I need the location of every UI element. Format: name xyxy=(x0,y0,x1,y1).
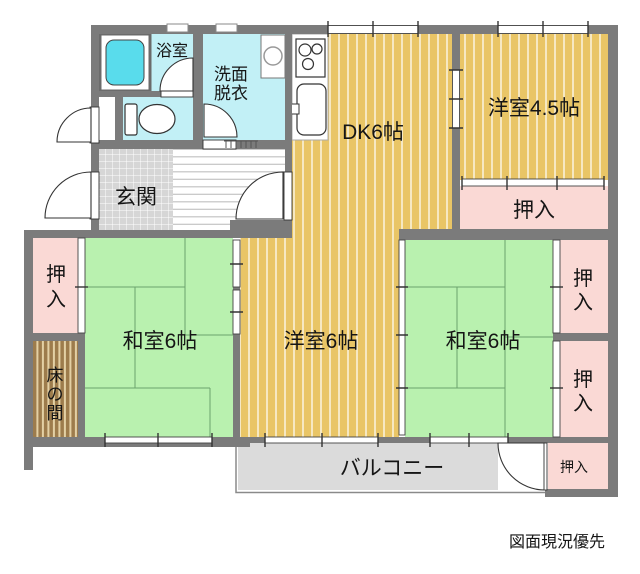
dk-opening-floor xyxy=(292,220,399,240)
kitchen-sink xyxy=(297,84,326,135)
front-door-arc xyxy=(45,172,91,218)
stove xyxy=(296,39,325,77)
label-tokonoma: 床の間 xyxy=(47,366,64,423)
label-closet-balcony-side: 押入 xyxy=(560,459,588,475)
toilet-entry-nook xyxy=(99,97,115,140)
drawing-note: 図面現況優先 xyxy=(509,533,605,551)
label-closet-upper-right: 押入 xyxy=(513,199,555,222)
label-genkan: 玄関 xyxy=(115,186,157,209)
balcony-closet-door-panel xyxy=(544,443,547,490)
toilet-door-arc xyxy=(57,108,91,142)
label-dk: DK6帖 xyxy=(342,121,404,144)
bathtub xyxy=(106,40,144,85)
floor-plan: 浴室 洗面 脱衣 玄関 DK6帖 洋室4.5帖 押入 和室6帖 洋室6帖 和室6… xyxy=(0,0,640,574)
label-japanese-right: 和室6帖 xyxy=(446,330,521,353)
wall-notch xyxy=(167,24,188,32)
label-washroom-line2: 脱衣 xyxy=(214,84,248,103)
label-western6: 洋室6帖 xyxy=(284,330,359,353)
toilet-tank xyxy=(125,104,137,135)
label-balcony: バルコニー xyxy=(340,457,445,480)
hall-dk-door-panel xyxy=(284,172,292,220)
sink-faucet xyxy=(291,104,299,114)
bathroom-door-gap xyxy=(161,91,193,97)
label-japanese-left: 和室6帖 xyxy=(123,330,198,353)
toilet-bowl xyxy=(139,105,175,134)
label-bathroom: 浴室 xyxy=(156,42,188,60)
washing-machine-drum xyxy=(264,47,282,65)
wall-notch xyxy=(216,24,237,32)
balcony-closet-door-arc xyxy=(498,443,545,490)
label-western45: 洋室4.5帖 xyxy=(488,97,580,120)
label-washroom-line1: 洗面 xyxy=(214,65,248,84)
floor-plan-svg: 浴室 洗面 脱衣 玄関 DK6帖 洋室4.5帖 押入 和室6帖 洋室6帖 和室6… xyxy=(0,0,640,574)
